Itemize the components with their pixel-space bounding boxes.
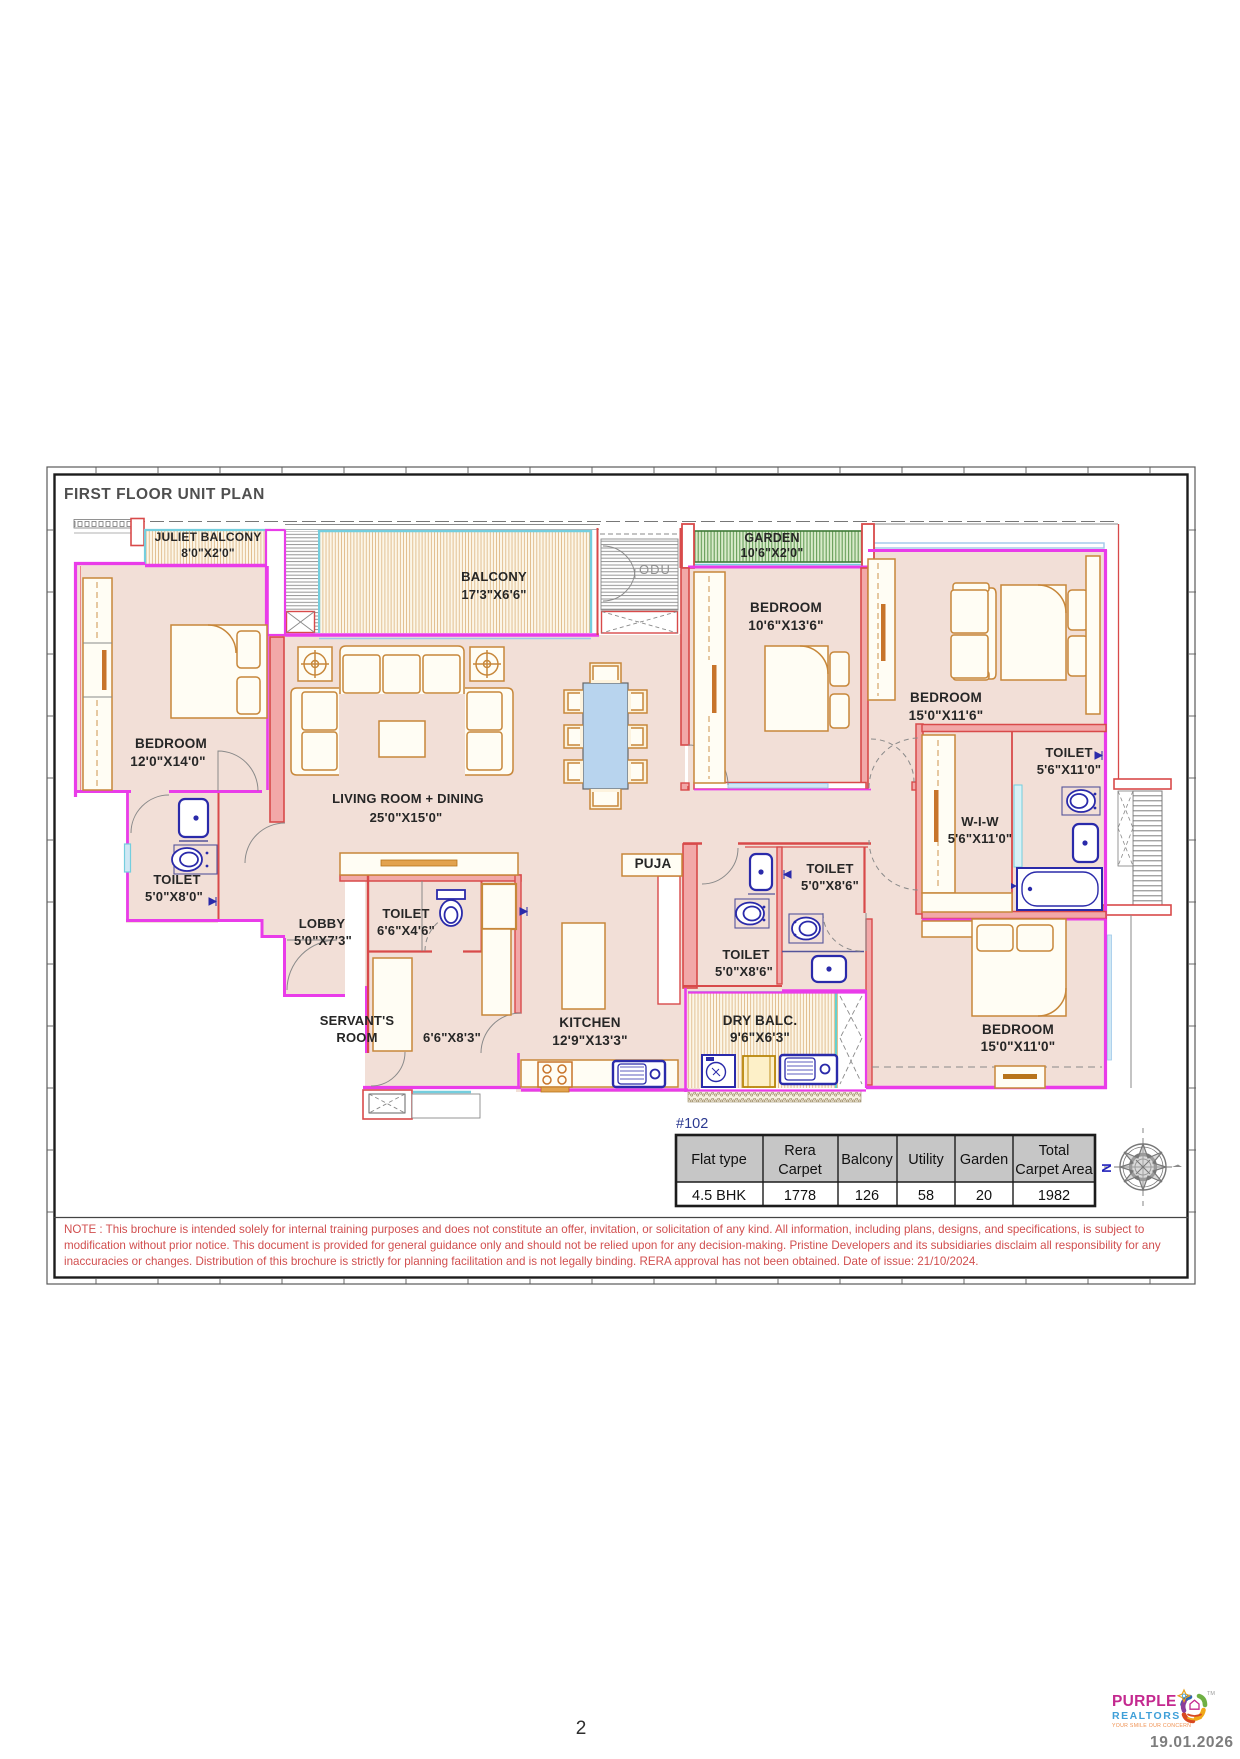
svg-text:BEDROOM: BEDROOM — [982, 1022, 1054, 1037]
svg-text:ODU: ODU — [639, 562, 671, 577]
svg-text:15'0"X11'0": 15'0"X11'0" — [981, 1039, 1056, 1054]
svg-text:58: 58 — [918, 1188, 934, 1204]
svg-text:10'6"X13'6": 10'6"X13'6" — [748, 618, 823, 633]
svg-text:TOILET: TOILET — [806, 861, 853, 876]
svg-text:Carpet: Carpet — [778, 1162, 822, 1178]
svg-text:6'6"X4'6": 6'6"X4'6" — [377, 923, 435, 938]
svg-text:5'0"X8'0": 5'0"X8'0" — [145, 889, 203, 904]
svg-text:Flat type: Flat type — [691, 1152, 747, 1168]
svg-text:SERVANT'S: SERVANT'S — [320, 1013, 395, 1028]
svg-text:GARDEN: GARDEN — [744, 531, 799, 545]
svg-text:12'0"X14'0": 12'0"X14'0" — [130, 754, 205, 769]
svg-text:20: 20 — [976, 1188, 992, 1204]
svg-text:FIRST FLOOR UNIT PLAN: FIRST FLOOR UNIT PLAN — [64, 486, 265, 503]
svg-text:15'0"X11'6": 15'0"X11'6" — [909, 708, 984, 723]
svg-text:TOILET: TOILET — [722, 947, 769, 962]
svg-text:modification without prior not: modification without prior notice. This … — [64, 1239, 1161, 1252]
svg-text:4.5 BHK: 4.5 BHK — [692, 1188, 746, 1204]
svg-text:2: 2 — [576, 1718, 587, 1739]
svg-text:Carpet Area: Carpet Area — [1015, 1162, 1093, 1178]
svg-text:5'0"X8'6": 5'0"X8'6" — [801, 878, 859, 893]
svg-text:8'0"X2'0": 8'0"X2'0" — [181, 546, 235, 560]
svg-text:YOUR SMILE OUR CONCERN: YOUR SMILE OUR CONCERN — [1112, 1723, 1191, 1729]
svg-text:PUJA: PUJA — [635, 856, 672, 871]
svg-text:6'6"X8'3": 6'6"X8'3" — [423, 1030, 481, 1045]
svg-text:N: N — [1099, 1163, 1114, 1172]
svg-text:TM: TM — [1207, 1691, 1215, 1697]
svg-text:#102: #102 — [676, 1116, 708, 1132]
svg-text:Total: Total — [1039, 1143, 1070, 1159]
svg-text:BEDROOM: BEDROOM — [750, 600, 822, 615]
svg-text:W-I-W: W-I-W — [961, 814, 999, 829]
svg-text:ROOM: ROOM — [336, 1030, 377, 1045]
svg-text:5'0"X7'3": 5'0"X7'3" — [294, 933, 352, 948]
svg-text:5'6"X11'0": 5'6"X11'0" — [1037, 762, 1102, 777]
svg-text:10'6"X2'0": 10'6"X2'0" — [741, 546, 804, 560]
svg-text:NOTE : This brochure is intend: NOTE : This brochure is intended solely … — [64, 1223, 1144, 1236]
svg-text:TOILET: TOILET — [382, 906, 429, 921]
svg-text:TOILET: TOILET — [153, 872, 200, 887]
svg-text:DRY BALC.: DRY BALC. — [723, 1013, 798, 1028]
svg-text:PURPLE: PURPLE — [1112, 1693, 1177, 1710]
svg-text:5'6"X11'0": 5'6"X11'0" — [948, 831, 1013, 846]
svg-text:1982: 1982 — [1038, 1188, 1070, 1204]
svg-text:LOBBY: LOBBY — [299, 916, 346, 931]
svg-text:BEDROOM: BEDROOM — [135, 736, 207, 751]
svg-text:1778: 1778 — [784, 1188, 816, 1204]
svg-text:BEDROOM: BEDROOM — [910, 690, 982, 705]
svg-text:Utility: Utility — [908, 1152, 944, 1168]
svg-text:Balcony: Balcony — [841, 1152, 893, 1168]
svg-text:BALCONY: BALCONY — [461, 569, 527, 584]
svg-text:9'6"X6'3": 9'6"X6'3" — [730, 1030, 790, 1045]
svg-text:LIVING ROOM + DINING: LIVING ROOM + DINING — [332, 791, 484, 806]
svg-text:12'9"X13'3": 12'9"X13'3" — [552, 1033, 627, 1048]
svg-text:TOILET: TOILET — [1045, 745, 1092, 760]
svg-text:19.01.2026: 19.01.2026 — [1150, 1734, 1234, 1751]
svg-text:25'0"X15'0": 25'0"X15'0" — [370, 810, 443, 825]
svg-text:REALTORS: REALTORS — [1112, 1710, 1181, 1722]
svg-text:JULIET BALCONY: JULIET BALCONY — [155, 530, 262, 544]
svg-text:KITCHEN: KITCHEN — [559, 1015, 620, 1030]
svg-text:Rera: Rera — [784, 1143, 816, 1159]
svg-text:inaccuracies or changes. Distr: inaccuracies or changes. Distribution of… — [64, 1255, 979, 1268]
svg-text:5'0"X8'6": 5'0"X8'6" — [715, 964, 773, 979]
svg-text:17'3"X6'6": 17'3"X6'6" — [461, 587, 526, 602]
svg-text:Garden: Garden — [960, 1152, 1008, 1168]
svg-text:126: 126 — [855, 1188, 879, 1204]
